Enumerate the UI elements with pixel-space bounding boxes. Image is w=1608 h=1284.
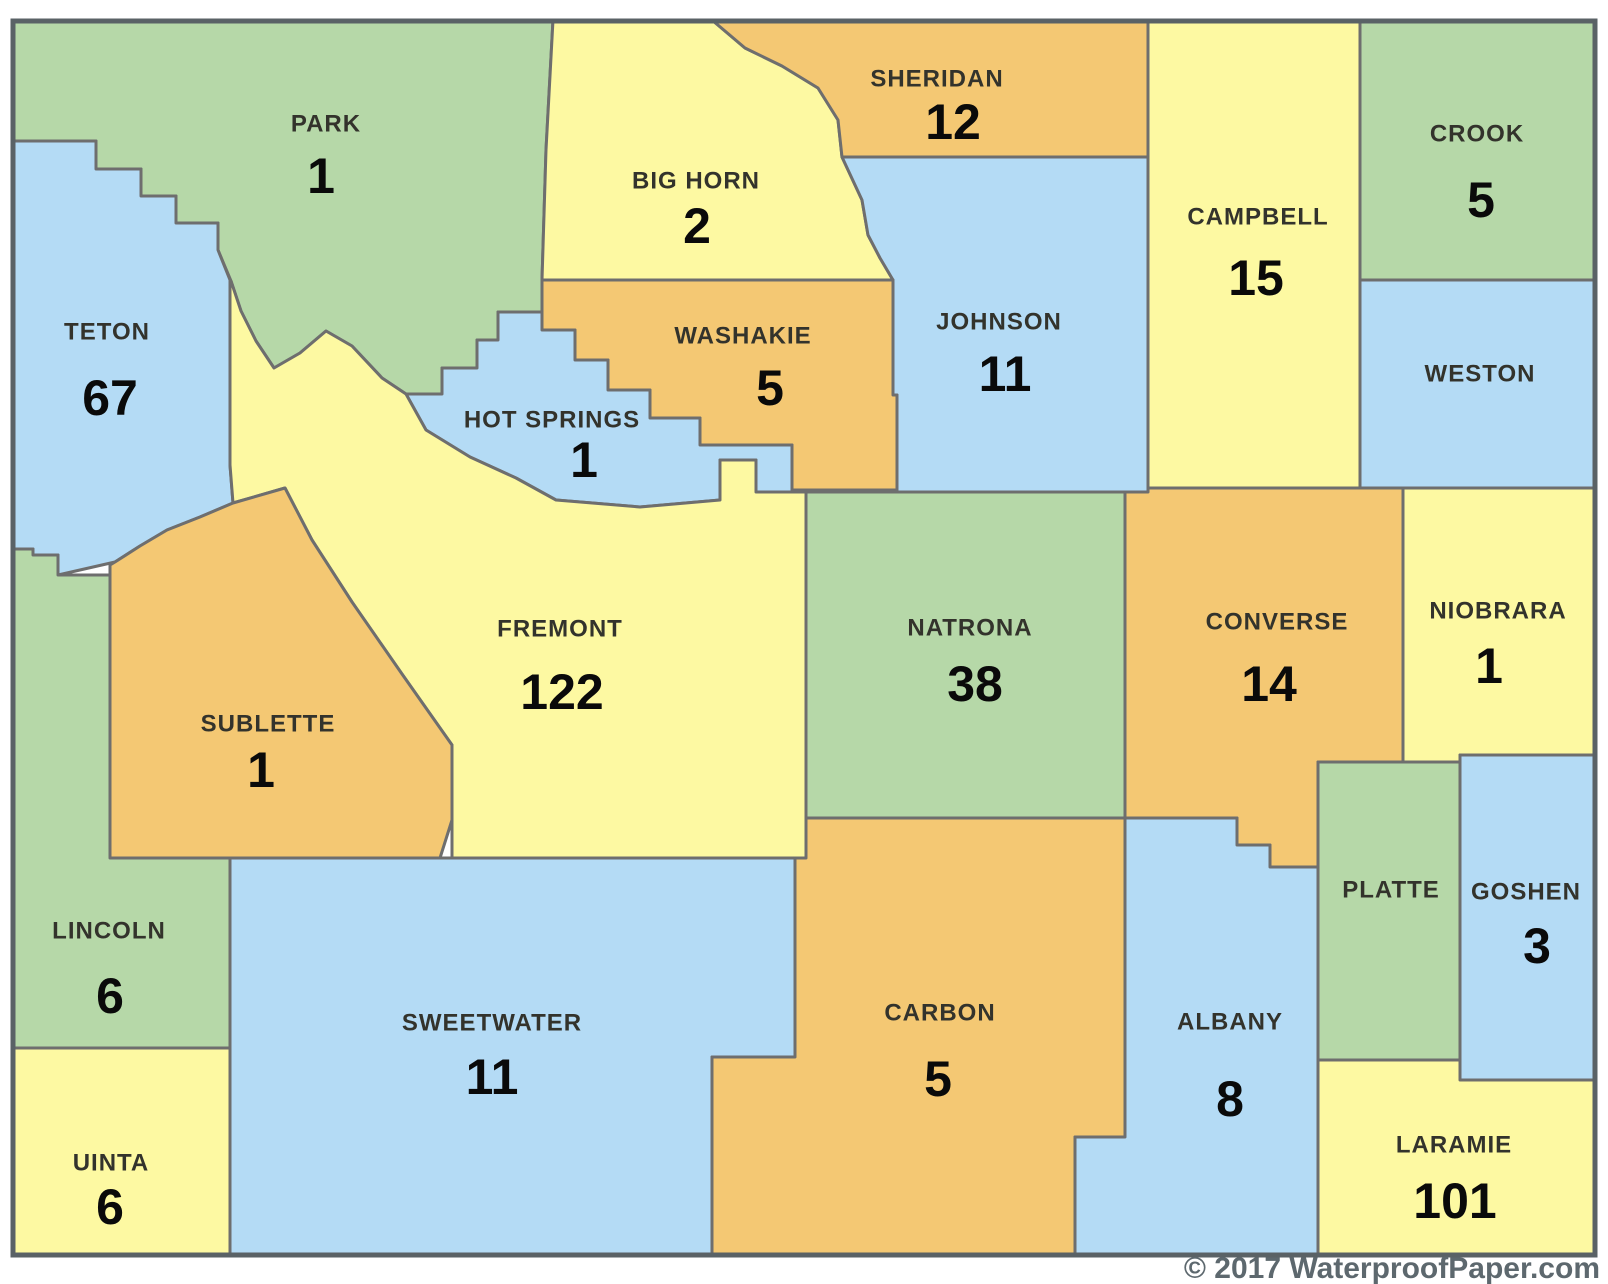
county-label-albany: ALBANY	[1177, 1009, 1283, 1036]
county-label-campbell: CAMPBELL	[1187, 204, 1328, 231]
county-value-washakie: 5	[756, 360, 784, 416]
county-label-crook: CROOK	[1430, 121, 1524, 148]
county-label-hot-springs: HOT SPRINGS	[464, 407, 640, 434]
county-label-washakie: WASHAKIE	[674, 323, 811, 350]
county-label-big-horn: BIG HORN	[632, 168, 760, 195]
county-label-laramie: LARAMIE	[1396, 1132, 1512, 1159]
county-label-teton: TETON	[64, 319, 150, 346]
county-label-lincoln: LINCOLN	[52, 918, 166, 945]
county-niobrara	[1403, 488, 1596, 762]
county-platte	[1318, 762, 1460, 1060]
county-label-carbon: CARBON	[884, 1000, 995, 1027]
copyright-text: © 2017 WaterproofPaper.com	[1184, 1252, 1600, 1284]
county-value-converse: 14	[1241, 656, 1297, 712]
county-value-laramie: 101	[1413, 1173, 1496, 1229]
county-label-goshen: GOSHEN	[1471, 879, 1581, 906]
county-label-uinta: UINTA	[73, 1150, 150, 1177]
county-label-sweetwater: SWEETWATER	[402, 1010, 582, 1037]
county-natrona	[806, 492, 1125, 818]
county-value-sweetwater: 11	[466, 1049, 519, 1105]
county-value-crook: 5	[1467, 172, 1495, 228]
county-crook	[1360, 20, 1596, 280]
county-label-platte: PLATTE	[1342, 877, 1440, 904]
county-label-sheridan: SHERIDAN	[870, 66, 1003, 93]
county-layer: PARK1TETON67BIG HORN2SHERIDAN12CAMPBELL1…	[12, 20, 1596, 1256]
county-value-sheridan: 12	[925, 94, 981, 150]
county-value-uinta: 6	[96, 1179, 124, 1235]
county-value-lincoln: 6	[96, 968, 124, 1024]
county-label-sublette: SUBLETTE	[201, 711, 336, 738]
county-label-park: PARK	[291, 111, 361, 138]
county-value-goshen: 3	[1523, 918, 1551, 974]
county-value-hot-springs: 1	[570, 432, 598, 488]
county-value-park: 1	[307, 148, 335, 204]
county-value-niobrara: 1	[1475, 638, 1503, 694]
county-label-niobrara: NIOBRARA	[1429, 598, 1566, 625]
county-value-sublette: 1	[247, 742, 275, 798]
county-value-teton: 67	[82, 370, 138, 426]
county-value-campbell: 15	[1228, 250, 1284, 306]
wyoming-county-map: PARK1TETON67BIG HORN2SHERIDAN12CAMPBELL1…	[0, 0, 1608, 1284]
map-canvas: PARK1TETON67BIG HORN2SHERIDAN12CAMPBELL1…	[0, 0, 1608, 1284]
county-value-big-horn: 2	[683, 198, 711, 254]
county-label-fremont: FREMONT	[497, 616, 623, 643]
county-label-weston: WESTON	[1425, 361, 1536, 388]
county-label-natrona: NATRONA	[907, 615, 1032, 642]
county-value-fremont: 122	[520, 664, 603, 720]
county-value-albany: 8	[1216, 1071, 1244, 1127]
county-label-johnson: JOHNSON	[936, 309, 1062, 336]
county-label-converse: CONVERSE	[1206, 609, 1349, 636]
county-value-carbon: 5	[924, 1051, 952, 1107]
county-value-johnson: 11	[979, 346, 1032, 402]
county-value-natrona: 38	[947, 656, 1003, 712]
